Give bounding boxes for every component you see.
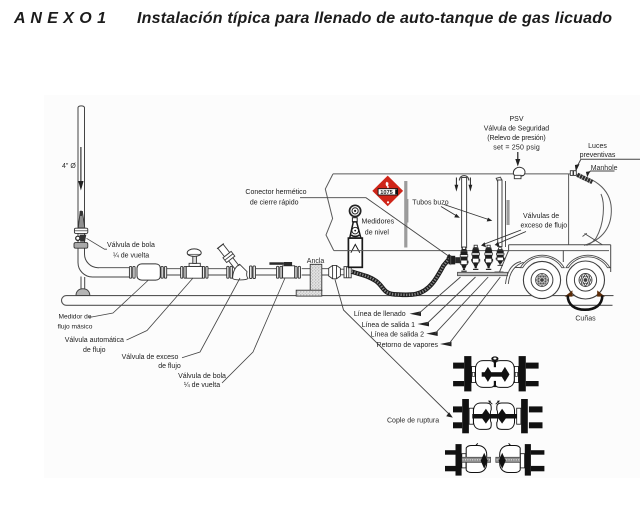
svg-text:Válvula automática: Válvula automática: [65, 337, 124, 344]
svg-text:de flujo: de flujo: [83, 347, 106, 354]
svg-text:Válvula de exceso: Válvula de exceso: [122, 354, 179, 361]
svg-text:Retorno de vapores: Retorno de vapores: [377, 342, 439, 349]
svg-text:Luces: Luces: [588, 143, 607, 150]
svg-text:1075: 1075: [380, 190, 393, 196]
svg-text:Tubos buzo: Tubos buzo: [412, 199, 448, 206]
svg-text:Medidores: Medidores: [362, 218, 395, 225]
svg-text:(Relevo de presión): (Relevo de presión): [487, 135, 546, 142]
svg-text:Conector hermético: Conector hermético: [245, 189, 306, 196]
svg-text:¼ de vuelta: ¼ de vuelta: [113, 253, 149, 260]
svg-text:Ancla: Ancla: [307, 258, 325, 265]
svg-text:Válvula de bola: Válvula de bola: [178, 373, 226, 380]
svg-text:Válvula de bola: Válvula de bola: [107, 242, 155, 249]
svg-text:Medidor de: Medidor de: [59, 313, 92, 320]
svg-text:Válvulas de: Válvulas de: [523, 213, 559, 220]
svg-text:Cople de ruptura: Cople de ruptura: [387, 417, 439, 424]
svg-text:de cierre rápido: de cierre rápido: [250, 200, 299, 207]
svg-text:4" Ø: 4" Ø: [62, 163, 76, 170]
svg-text:Cuñas: Cuñas: [575, 316, 596, 323]
svg-text:preventivas: preventivas: [580, 152, 616, 159]
svg-text:Línea de salida 1: Línea de salida 1: [362, 322, 415, 329]
svg-text:de flujo: de flujo: [158, 363, 181, 370]
svg-text:Línea de salida 2: Línea de salida 2: [371, 331, 424, 338]
svg-text:flujo másico: flujo másico: [58, 323, 93, 330]
svg-text:Instalación típica para llenad: Instalación típica para llenado de auto-…: [137, 10, 612, 27]
svg-text:¼ de vuelta: ¼ de vuelta: [184, 382, 220, 389]
svg-text:Línea de llenado: Línea de llenado: [354, 311, 406, 318]
svg-text:exceso de flujo: exceso de flujo: [521, 222, 568, 229]
svg-text:de nivel: de nivel: [365, 229, 390, 236]
svg-text:set = 250 psig: set = 250 psig: [493, 145, 540, 152]
svg-text:Válvula de Seguridad: Válvula de Seguridad: [484, 126, 549, 133]
svg-text:PSV: PSV: [509, 116, 523, 123]
svg-text:A N E X O 1: A N E X O 1: [13, 10, 106, 27]
